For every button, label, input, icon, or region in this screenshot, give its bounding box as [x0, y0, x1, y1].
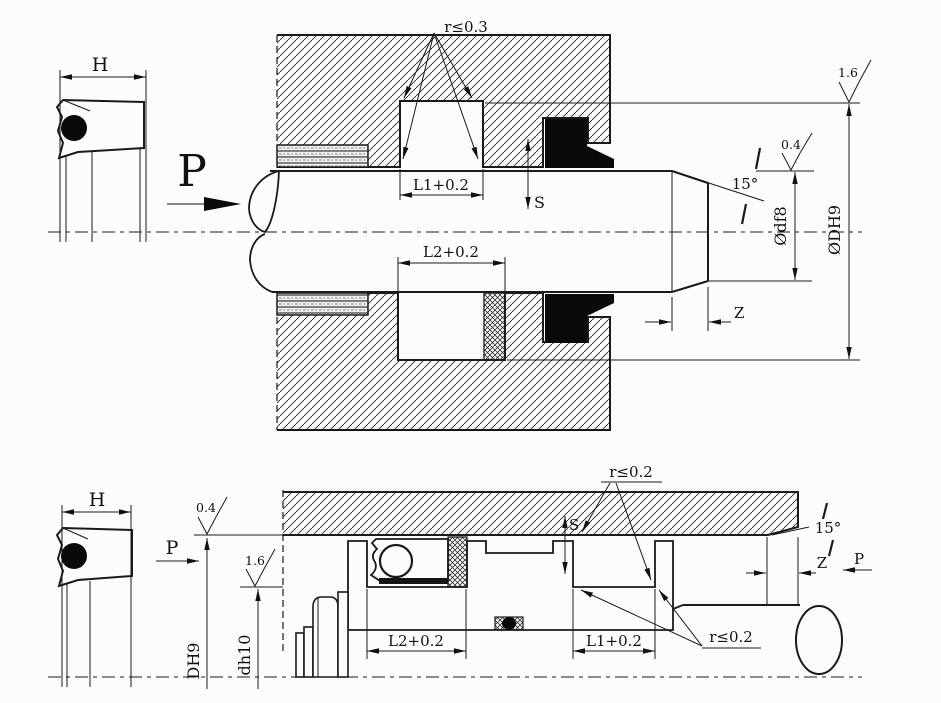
top-drawing: H P — [48, 18, 871, 430]
seal-cross-section-bottom: H — [57, 489, 132, 687]
dimension-l2-bottom: L2+0.2 — [367, 589, 466, 659]
roughness-icon — [782, 153, 800, 170]
l1-label: L1+0.2 — [586, 632, 642, 650]
seal-base-strip — [379, 578, 448, 584]
roughness-value: 1.6 — [245, 553, 265, 568]
roughness-groove-top: 1.6 — [838, 60, 871, 102]
piston-rod — [249, 171, 708, 292]
dimension-z-top: Z — [645, 287, 744, 331]
bearing-band-lower — [277, 293, 368, 315]
angle-tick — [756, 148, 760, 169]
radius-label: r≤0.2 — [709, 628, 753, 646]
roughness-value: 0.4 — [196, 500, 216, 515]
dimension-groove-dh10: dh10 — [235, 589, 258, 689]
rod-chamfer — [673, 605, 683, 609]
z-label: Z — [817, 554, 827, 572]
piston — [348, 537, 673, 630]
pressure-label: P — [166, 537, 179, 559]
pressure-arrow-icon — [204, 197, 241, 211]
roughness-icon-tail — [859, 60, 871, 82]
roughness-icon-tail — [264, 549, 275, 569]
rod-o-ring — [502, 617, 516, 629]
cylinder-body — [283, 492, 798, 535]
seal-installation-drawing: H P — [0, 0, 941, 703]
seal-energizer-ring — [380, 545, 412, 577]
pressure-label: P — [854, 550, 864, 568]
roughness-bore-bottom: 0.4 — [194, 497, 283, 535]
radius-label: r≤0.2 — [609, 463, 653, 481]
l2-label: L2+0.2 — [423, 243, 479, 261]
bore-diameter-label: ØDH9 — [825, 205, 844, 255]
bottom-drawing: H P 0.4 DH9 1.6 — [48, 463, 872, 689]
roughness-icon — [246, 569, 264, 586]
leader-line — [659, 590, 702, 646]
backup-ring — [484, 293, 505, 360]
rod-end-ball — [796, 606, 842, 674]
piston-rod-bottom — [296, 592, 842, 677]
roughness-value: 1.6 — [838, 65, 858, 80]
roughness-icon — [198, 517, 216, 534]
dimension-z-bottom: Z — [746, 537, 827, 604]
angle-label: 15° — [732, 175, 759, 193]
pressure-indicator-bottom-left: P — [156, 537, 199, 561]
seal-lip-line — [63, 528, 88, 539]
h-dimension-label: H — [89, 489, 106, 511]
angle-tick — [742, 204, 746, 224]
dimension-l1-bottom: L1+0.2 — [573, 589, 655, 659]
roughness-icon — [839, 82, 859, 102]
drawing-svg: H P — [0, 0, 941, 703]
l2-label: L2+0.2 — [388, 632, 444, 650]
l1-label: L1+0.2 — [413, 176, 469, 194]
rod-diameter-label: Ødf8 — [771, 206, 790, 245]
retainer-plate — [338, 592, 348, 677]
dimension-rod-diameter: Ødf8 — [706, 172, 812, 281]
s-label: S — [569, 516, 579, 534]
washer — [304, 627, 313, 677]
h-dimension-label: H — [92, 54, 109, 76]
roughness-rod-top: 0.4 — [756, 133, 814, 171]
groove-root-label: dh10 — [235, 635, 254, 676]
pressure-label: P — [177, 146, 207, 197]
seal-cross-section-top: H — [57, 54, 146, 242]
angle-tick — [823, 503, 827, 519]
washer — [296, 633, 304, 677]
roughness-icon-tail — [800, 133, 812, 153]
angle-label: 15° — [815, 519, 842, 537]
z-label: Z — [734, 304, 744, 322]
roughness-groove-bottom: 1.6 — [240, 549, 283, 587]
pressure-indicator-bottom-right: P — [843, 550, 872, 570]
roughness-value: 0.4 — [781, 137, 801, 152]
pressure-indicator-top: P — [167, 146, 241, 211]
backup-ring — [448, 537, 467, 587]
lock-nut — [313, 597, 338, 677]
o-ring — [61, 115, 87, 141]
s-label: S — [534, 193, 545, 212]
bore-label: DH9 — [184, 643, 203, 680]
roughness-icon-tail — [216, 497, 227, 517]
angle-tick — [829, 540, 833, 556]
seal-lip-line — [63, 100, 90, 111]
bearing-band-upper — [277, 145, 368, 167]
cylinder-wall — [283, 492, 798, 535]
o-ring — [61, 543, 87, 569]
radius-label: r≤0.3 — [444, 18, 488, 36]
